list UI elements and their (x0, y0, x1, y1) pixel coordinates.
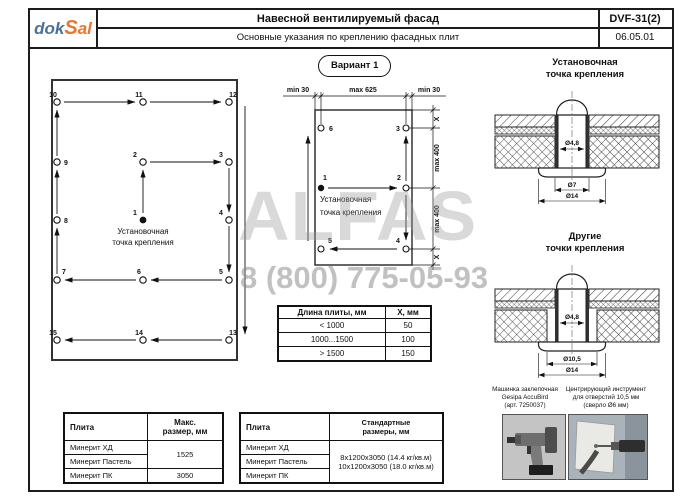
cell-length: < 1000 (278, 319, 386, 333)
page-subtitle: Основные указания по креплению фасадных … (98, 29, 598, 46)
svg-text:3: 3 (219, 152, 223, 159)
cell-length: > 1500 (278, 347, 386, 362)
other-points-detail-drawing: Ø4,8 Ø10,5 Ø14 (487, 262, 667, 380)
anchor-point (140, 217, 147, 224)
table-row: 1000...1500 100 (278, 333, 431, 347)
doc-code: DVF-31(2) (600, 10, 670, 27)
svg-text:2: 2 (133, 152, 137, 159)
cell-sizes: 8x1200x3050 (14.4 кг/кв.м) 10x1200x3050 … (330, 441, 444, 484)
svg-text:X: X (434, 254, 441, 259)
svg-text:Установочная: Установочная (320, 195, 371, 204)
variant-1-diagram: min 30 max 625 min 30 X max 400 max 400 … (268, 80, 468, 280)
centering-tool-caption: Центрирующий инструмент для отверстий 10… (565, 386, 647, 410)
svg-text:Установочная: Установочная (117, 227, 168, 236)
rivet-gun-image (502, 414, 566, 480)
document-page: dokSal Навесной вентилируемый фасад Осно… (0, 0, 700, 498)
doc-date: 06.05.01 (600, 29, 670, 46)
svg-text:12: 12 (229, 92, 237, 99)
standard-size-table: Плита Стандартные размеры, мм Минерит ХД… (239, 412, 444, 484)
cell-plate: Минерит ПК (240, 469, 330, 484)
logo: dokSal (30, 10, 96, 47)
table-row: Минерит ПК 3050 (64, 469, 223, 484)
page-title: Навесной вентилируемый фасад (98, 10, 598, 27)
other-detail-title: Другие точки крепления (500, 231, 670, 255)
logo-part-al: al (78, 19, 92, 38)
anchor-detail-title: Установочная точка крепления (500, 57, 670, 81)
svg-text:5: 5 (328, 238, 332, 245)
svg-text:Ø4,8: Ø4,8 (565, 314, 579, 321)
svg-text:2: 2 (397, 175, 401, 182)
svg-text:14: 14 (135, 330, 143, 337)
svg-text:Ø14: Ø14 (566, 193, 579, 200)
cell-plate: Минерит Пастель (240, 455, 330, 469)
x-table-header-x: X, мм (386, 306, 432, 319)
plate-length-x-table: Длина плиты, мм X, мм < 1000 50 1000...1… (277, 305, 432, 362)
svg-text:1: 1 (323, 175, 327, 182)
max-table-header-size: Макс. размер, мм (148, 413, 224, 441)
svg-text:5: 5 (219, 269, 223, 276)
svg-text:8: 8 (64, 218, 68, 225)
svg-text:min 30: min 30 (287, 87, 309, 94)
table-row: < 1000 50 (278, 319, 431, 333)
centering-tool-image (568, 414, 648, 480)
variant-badge: Вариант 1 (318, 55, 391, 77)
max-size-table: Плита Макс. размер, мм Минерит ХД 1525 М… (63, 412, 224, 484)
cell-plate: Минерит ПК (64, 469, 148, 484)
cell-length: 1000...1500 (278, 333, 386, 347)
cell-size: 1525 (148, 441, 224, 469)
svg-text:13: 13 (229, 330, 237, 337)
svg-text:7: 7 (62, 269, 66, 276)
svg-text:4: 4 (396, 238, 400, 245)
std-table-header-plate: Плита (240, 413, 330, 441)
x-table-header-length: Длина плиты, мм (278, 306, 386, 319)
cell-x: 150 (386, 347, 432, 362)
svg-text:max 625: max 625 (349, 87, 377, 94)
table-row: Минерит ХД 1525 (64, 441, 223, 455)
svg-text:min 30: min 30 (418, 87, 440, 94)
cell-x: 100 (386, 333, 432, 347)
svg-text:точка крепления: точка крепления (112, 238, 173, 247)
svg-text:Ø14: Ø14 (566, 367, 579, 374)
logo-part-s: S (64, 17, 77, 39)
cell-plate: Минерит ХД (240, 441, 330, 455)
svg-text:max 400: max 400 (434, 205, 441, 233)
svg-text:точка крепления: точка крепления (320, 208, 381, 217)
svg-text:Ø10,5: Ø10,5 (563, 356, 581, 363)
svg-text:6: 6 (137, 269, 141, 276)
top-dimension-labels: min 30 max 625 min 30 (287, 87, 440, 94)
riveter-caption: Машинка заклепочная Gesipa AccuBird (арт… (489, 386, 561, 410)
cell-size: 3050 (148, 469, 224, 484)
svg-text:4: 4 (219, 210, 223, 217)
svg-text:X: X (434, 116, 441, 121)
table-row: Минерит ХД 8x1200x3050 (14.4 кг/кв.м) 10… (240, 441, 443, 455)
svg-text:15: 15 (49, 330, 57, 337)
svg-text:max 400: max 400 (434, 144, 441, 172)
svg-text:1: 1 (133, 210, 137, 217)
anchor-point-detail-drawing: Ø4,8 Ø7 Ø14 (487, 88, 667, 206)
svg-text:Ø4,8: Ø4,8 (565, 140, 579, 147)
svg-text:Ø7: Ø7 (568, 182, 577, 189)
svg-text:11: 11 (135, 92, 143, 99)
svg-text:10: 10 (49, 92, 57, 99)
anchor-point (318, 185, 324, 191)
mounting-sequence-diagram: 10 11 12 9 2 3 8 1 4 7 6 5 15 14 13 Уста… (40, 70, 260, 370)
cell-x: 50 (386, 319, 432, 333)
cell-plate: Минерит Пастель (64, 455, 148, 469)
header-bottom-border (28, 47, 672, 49)
std-table-header-size: Стандартные размеры, мм (330, 413, 444, 441)
logo-part-dok: dok (34, 19, 64, 38)
max-table-header-plate: Плита (64, 413, 148, 441)
right-dimension-lines (409, 105, 440, 270)
table-row: > 1500 150 (278, 347, 431, 362)
svg-text:3: 3 (396, 126, 400, 133)
cell-plate: Минерит ХД (64, 441, 148, 455)
svg-text:6: 6 (329, 126, 333, 133)
svg-text:9: 9 (64, 160, 68, 167)
